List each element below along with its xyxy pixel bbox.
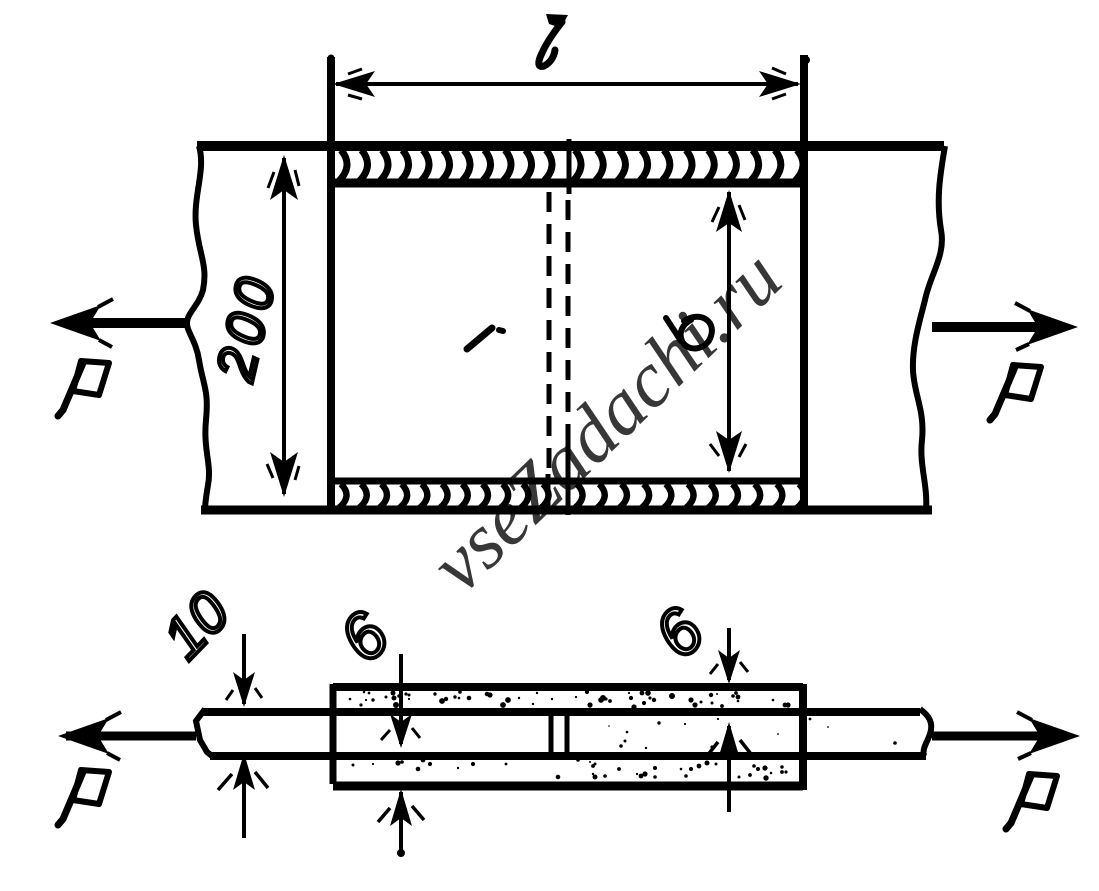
svg-text:6: 6 <box>640 593 718 671</box>
svg-text:vseZadachi.ru: vseZadachi.ru <box>414 234 798 609</box>
svg-text:6: 6 <box>325 597 403 675</box>
svg-text:200: 200 <box>205 267 288 387</box>
svg-text:10: 10 <box>151 579 243 671</box>
